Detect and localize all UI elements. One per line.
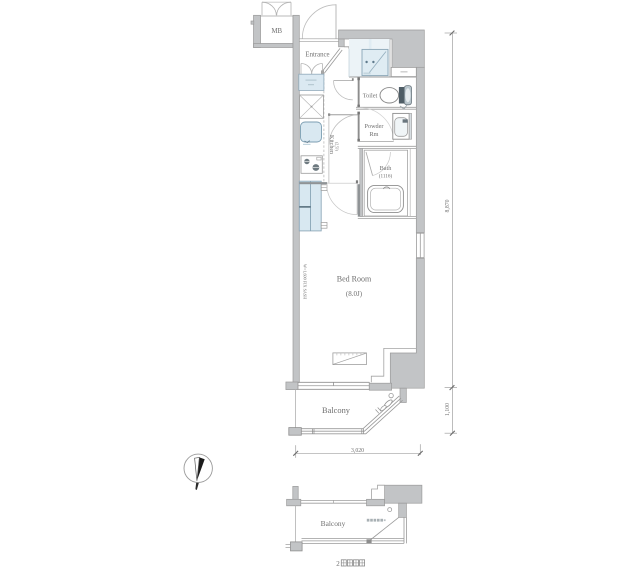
svg-text:3,020: 3,020 xyxy=(351,448,364,454)
svg-text:2: 2 xyxy=(336,560,340,568)
svg-text:Balcony: Balcony xyxy=(322,406,351,415)
svg-text:(8.0J): (8.0J) xyxy=(346,290,363,298)
svg-text:Bed Room: Bed Room xyxy=(337,275,372,284)
svg-text:Bath: Bath xyxy=(380,165,393,172)
svg-text:Entrance: Entrance xyxy=(305,52,329,59)
svg-text:MB: MB xyxy=(272,28,283,35)
svg-text:Toilet: Toilet xyxy=(363,93,378,100)
svg-text:1,100: 1,100 xyxy=(445,403,451,416)
svg-text:Powder: Powder xyxy=(365,123,384,130)
svg-text:(1116): (1116) xyxy=(379,173,393,180)
svg-text:8,870: 8,870 xyxy=(445,199,451,212)
svg-text:Rm: Rm xyxy=(370,131,379,138)
svg-text:(2.5J): (2.5J) xyxy=(334,142,338,151)
svg-text:Balcony: Balcony xyxy=(321,519,346,528)
svg-text:Kitchen: Kitchen xyxy=(328,135,334,154)
